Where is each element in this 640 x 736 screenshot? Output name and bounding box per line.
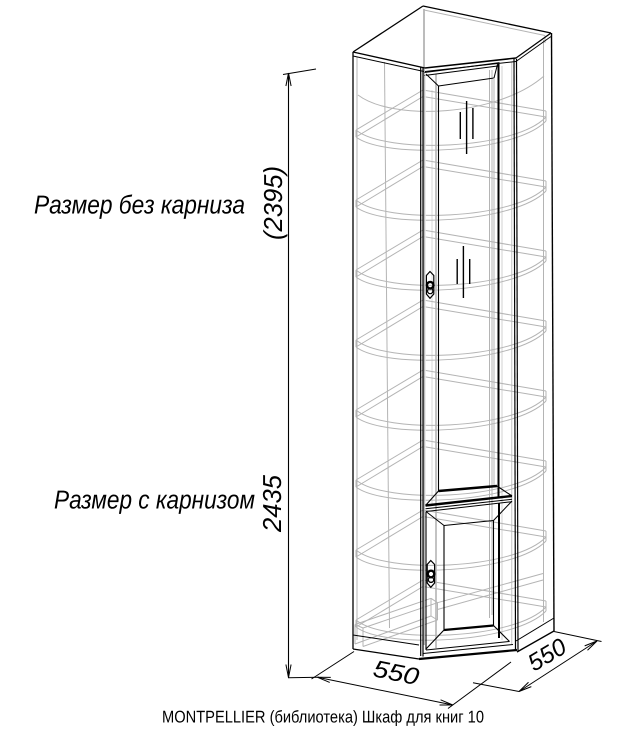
svg-text:Размер без карниза: Размер без карниза [34,190,245,220]
svg-text:550: 550 [371,655,422,691]
svg-text:2435: 2435 [257,474,287,533]
svg-text:550: 550 [523,633,572,677]
svg-text:Размер с карнизом: Размер с карнизом [54,485,255,515]
svg-text:(2395): (2395) [258,166,288,240]
svg-text:MONTPELLIER (библиотека) Шкаф: MONTPELLIER (библиотека) Шкаф для книг 1… [162,708,484,727]
